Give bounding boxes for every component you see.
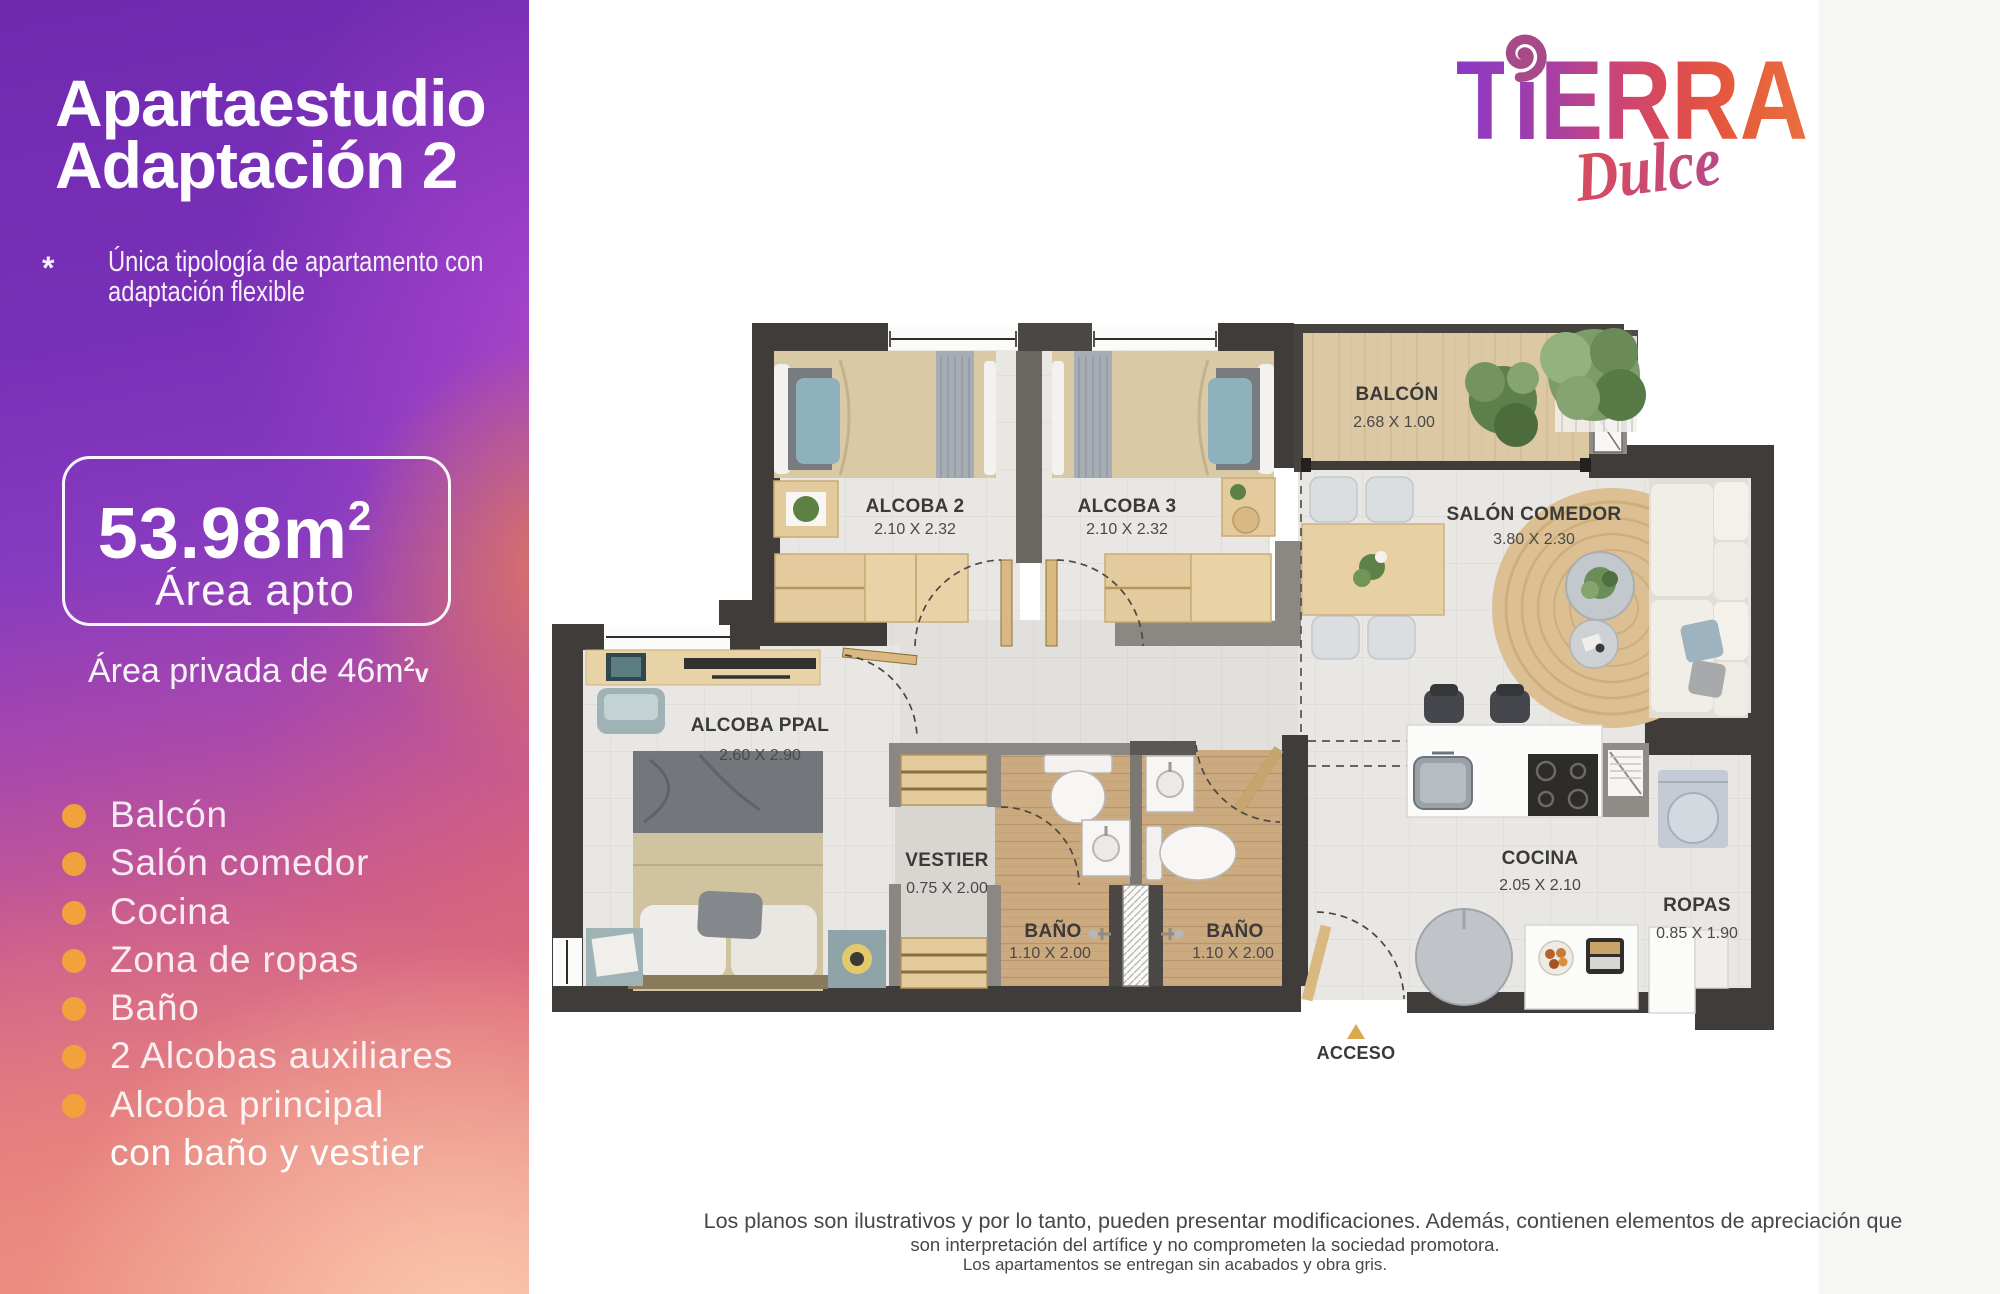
svg-text:2.05 X 2.10: 2.05 X 2.10: [1499, 877, 1581, 894]
svg-text:1.10 X 2.00: 1.10 X 2.00: [1192, 945, 1274, 962]
svg-text:BAÑO: BAÑO: [1206, 920, 1263, 942]
svg-text:SALÓN COMEDOR: SALÓN COMEDOR: [1447, 503, 1622, 525]
svg-text:ALCOBA PPAL: ALCOBA PPAL: [691, 715, 829, 736]
svg-text:2.68 X 1.00: 2.68 X 1.00: [1353, 414, 1435, 431]
svg-text:1.10 X 2.00: 1.10 X 2.00: [1009, 945, 1091, 962]
svg-text:BALCÓN: BALCÓN: [1355, 383, 1438, 405]
svg-text:VESTIER: VESTIER: [905, 850, 988, 871]
svg-text:BAÑO: BAÑO: [1024, 920, 1081, 942]
svg-text:ROPAS: ROPAS: [1663, 895, 1731, 916]
svg-text:0.85 X 1.90: 0.85 X 1.90: [1656, 925, 1738, 942]
svg-text:2.60 X 2.90: 2.60 X 2.90: [719, 747, 801, 764]
svg-text:ALCOBA 3: ALCOBA 3: [1078, 496, 1177, 517]
svg-text:3.80 X 2.30: 3.80 X 2.30: [1493, 531, 1575, 548]
svg-text:2.10 X 2.32: 2.10 X 2.32: [1086, 521, 1168, 538]
svg-text:COCINA: COCINA: [1502, 848, 1579, 869]
svg-text:2.10 X 2.32: 2.10 X 2.32: [874, 521, 956, 538]
svg-text:ACCESO: ACCESO: [1317, 1043, 1396, 1063]
svg-text:0.75 X 2.00: 0.75 X 2.00: [906, 880, 988, 897]
svg-text:ALCOBA 2: ALCOBA 2: [866, 496, 965, 517]
svg-text:Dulce: Dulce: [1570, 123, 1725, 217]
